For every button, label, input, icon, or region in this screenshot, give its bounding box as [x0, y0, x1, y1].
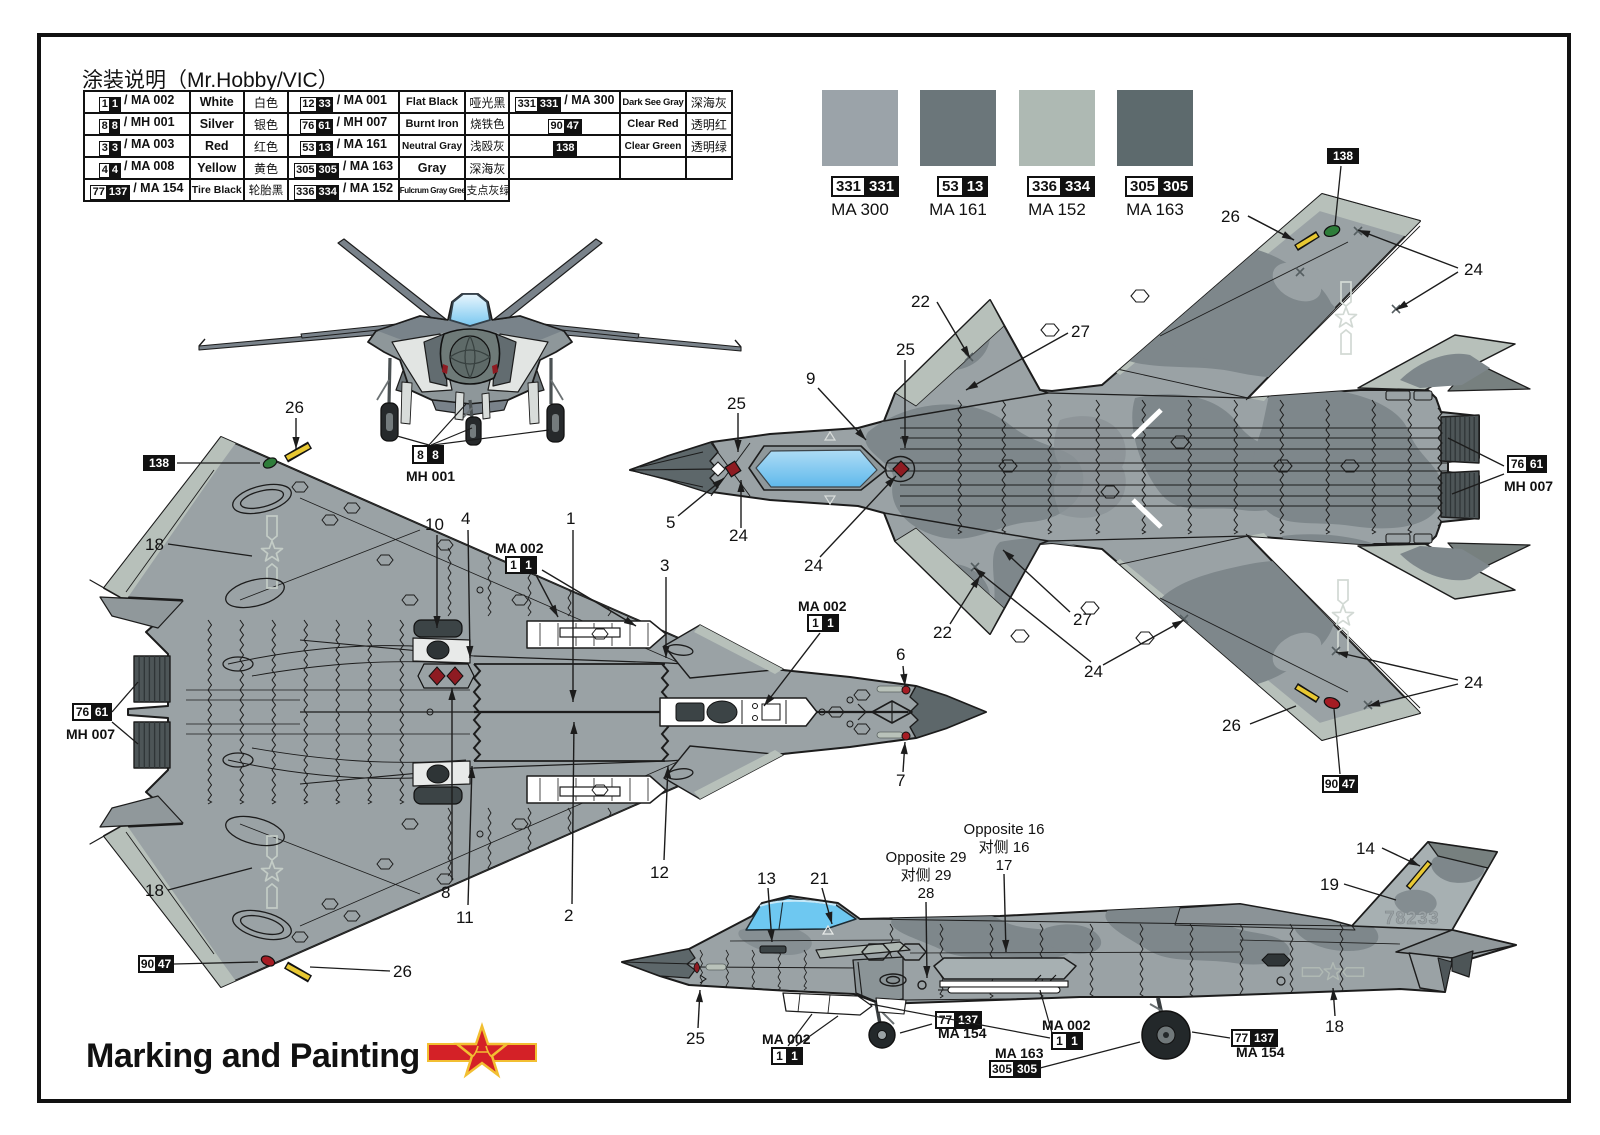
svg-text:61: 61 — [95, 705, 109, 719]
svg-text:18: 18 — [145, 881, 164, 900]
svg-text:3: 3 — [660, 556, 669, 575]
svg-text:MA 002: MA 002 — [495, 540, 544, 556]
svg-text:138: 138 — [149, 456, 169, 470]
svg-text:25: 25 — [896, 340, 915, 359]
svg-text:22: 22 — [911, 292, 930, 311]
svg-text:MH 001: MH 001 — [406, 468, 455, 484]
svg-text:1: 1 — [812, 616, 819, 630]
svg-text:24: 24 — [1084, 662, 1103, 681]
svg-text:14: 14 — [1356, 839, 1375, 858]
svg-text:1: 1 — [776, 1049, 783, 1063]
svg-text:22: 22 — [933, 623, 952, 642]
svg-text:305: 305 — [1017, 1062, 1037, 1076]
svg-text:MA 002: MA 002 — [798, 598, 847, 614]
svg-text:19: 19 — [1320, 875, 1339, 894]
svg-text:对侧 16: 对侧 16 — [979, 839, 1030, 856]
svg-text:8: 8 — [441, 883, 450, 902]
svg-text:1: 1 — [510, 558, 517, 572]
svg-text:24: 24 — [729, 526, 748, 545]
svg-text:28: 28 — [918, 885, 935, 902]
svg-text:26: 26 — [1221, 207, 1240, 226]
svg-text:25: 25 — [686, 1029, 705, 1048]
svg-text:1: 1 — [566, 509, 575, 528]
svg-text:17: 17 — [996, 857, 1013, 874]
svg-text:10: 10 — [425, 515, 444, 534]
svg-text:MA 163: MA 163 — [995, 1045, 1044, 1061]
svg-text:27: 27 — [1073, 610, 1092, 629]
svg-text:90: 90 — [1325, 777, 1339, 791]
svg-text:77: 77 — [1235, 1031, 1249, 1045]
svg-text:2: 2 — [564, 906, 573, 925]
svg-text:MA 154: MA 154 — [1236, 1044, 1285, 1060]
svg-text:8: 8 — [432, 448, 439, 462]
svg-text:138: 138 — [1333, 149, 1353, 163]
svg-text:18: 18 — [145, 535, 164, 554]
svg-text:Opposite 29: Opposite 29 — [886, 849, 967, 866]
svg-text:1: 1 — [827, 616, 834, 630]
svg-text:18: 18 — [1325, 1017, 1344, 1036]
svg-text:Opposite 16: Opposite 16 — [964, 821, 1045, 838]
svg-text:61: 61 — [1530, 457, 1544, 471]
svg-text:47: 47 — [1342, 777, 1356, 791]
svg-text:76: 76 — [76, 705, 90, 719]
svg-text:76: 76 — [1511, 457, 1525, 471]
svg-text:6: 6 — [896, 645, 905, 664]
svg-text:21: 21 — [810, 869, 829, 888]
svg-text:12: 12 — [650, 863, 669, 882]
svg-text:MH 007: MH 007 — [1504, 478, 1553, 494]
svg-text:25: 25 — [727, 394, 746, 413]
svg-text:78233: 78233 — [1384, 908, 1439, 928]
svg-text:8: 8 — [417, 448, 424, 462]
svg-text:26: 26 — [393, 962, 412, 981]
svg-text:MA 154: MA 154 — [938, 1025, 987, 1041]
svg-text:9: 9 — [806, 369, 815, 388]
svg-text:24: 24 — [804, 556, 823, 575]
svg-text:1: 1 — [791, 1049, 798, 1063]
svg-text:1: 1 — [1056, 1034, 1063, 1048]
svg-text:1: 1 — [525, 558, 532, 572]
svg-text:305: 305 — [992, 1062, 1012, 1076]
svg-text:90: 90 — [141, 957, 155, 971]
svg-text:26: 26 — [1222, 716, 1241, 735]
svg-text:13: 13 — [757, 869, 776, 888]
svg-text:MH 007: MH 007 — [66, 726, 115, 742]
svg-text:137: 137 — [1254, 1031, 1274, 1045]
svg-text:4: 4 — [461, 509, 470, 528]
svg-text:27: 27 — [1071, 322, 1090, 341]
svg-text:7: 7 — [896, 771, 905, 790]
svg-text:47: 47 — [158, 957, 172, 971]
svg-text:26: 26 — [285, 398, 304, 417]
svg-text:24: 24 — [1464, 260, 1483, 279]
svg-text:24: 24 — [1464, 673, 1483, 692]
svg-text:5: 5 — [666, 513, 675, 532]
svg-text:1: 1 — [1071, 1034, 1078, 1048]
svg-text:11: 11 — [456, 908, 474, 927]
svg-text:对侧 29: 对侧 29 — [901, 867, 952, 884]
svg-text:MA 002: MA 002 — [762, 1031, 811, 1047]
